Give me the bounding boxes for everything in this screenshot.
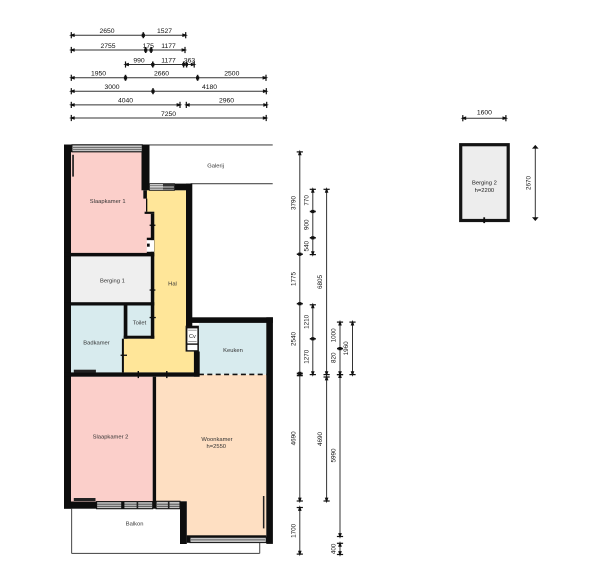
svg-text:1210: 1210 <box>303 314 310 329</box>
svg-text:363: 363 <box>184 57 196 64</box>
svg-text:2670: 2670 <box>525 176 532 191</box>
svg-text:Balkon: Balkon <box>126 522 144 528</box>
svg-text:2650: 2650 <box>99 28 114 35</box>
svg-text:820: 820 <box>330 352 337 363</box>
svg-text:3000: 3000 <box>104 84 119 91</box>
svg-text:Badkamer: Badkamer <box>83 341 109 347</box>
svg-text:4690: 4690 <box>317 432 324 447</box>
svg-text:1775: 1775 <box>290 272 297 287</box>
svg-text:Berging 1: Berging 1 <box>100 279 125 285</box>
svg-text:2660: 2660 <box>154 71 169 78</box>
svg-text:1600: 1600 <box>477 110 492 117</box>
svg-text:2755: 2755 <box>100 43 115 50</box>
svg-text:Slaapkamer 2: Slaapkamer 2 <box>93 435 129 441</box>
svg-text:1177: 1177 <box>161 57 176 64</box>
svg-text:Slaapkamer 1: Slaapkamer 1 <box>90 199 126 205</box>
svg-text:540: 540 <box>303 240 310 251</box>
svg-text:1950: 1950 <box>91 71 106 78</box>
svg-text:Hal: Hal <box>168 282 177 288</box>
svg-text:7250: 7250 <box>161 111 176 118</box>
svg-text:1000: 1000 <box>330 328 337 343</box>
svg-text:1177: 1177 <box>161 43 176 50</box>
svg-text:6805: 6805 <box>317 275 324 290</box>
svg-text:4180: 4180 <box>202 84 217 91</box>
svg-text:4040: 4040 <box>118 98 133 105</box>
svg-text:Woonkamer: Woonkamer <box>201 437 232 443</box>
svg-text:990: 990 <box>133 57 145 64</box>
svg-text:h=2200: h=2200 <box>475 188 495 194</box>
svg-text:Galerij: Galerij <box>207 164 224 170</box>
svg-text:2540: 2540 <box>290 332 297 347</box>
svg-text:770: 770 <box>303 195 310 206</box>
svg-text:1270: 1270 <box>303 349 310 364</box>
svg-text:1700: 1700 <box>290 523 297 538</box>
svg-text:Toilet: Toilet <box>133 321 147 327</box>
svg-text:1527: 1527 <box>157 28 172 35</box>
svg-text:3790: 3790 <box>290 196 297 211</box>
svg-text:h=2550: h=2550 <box>207 444 227 450</box>
svg-text:2500: 2500 <box>224 71 239 78</box>
svg-text:2960: 2960 <box>219 98 234 105</box>
svg-text:Berging 2: Berging 2 <box>472 181 497 187</box>
svg-text:Cv: Cv <box>189 334 196 340</box>
svg-text:1960: 1960 <box>343 341 350 356</box>
svg-text:400: 400 <box>330 543 337 554</box>
svg-text:5990: 5990 <box>330 448 337 463</box>
svg-text:Keuken: Keuken <box>223 348 243 354</box>
svg-text:900: 900 <box>303 219 310 230</box>
svg-text:175: 175 <box>143 43 155 50</box>
svg-text:4690: 4690 <box>290 431 297 446</box>
